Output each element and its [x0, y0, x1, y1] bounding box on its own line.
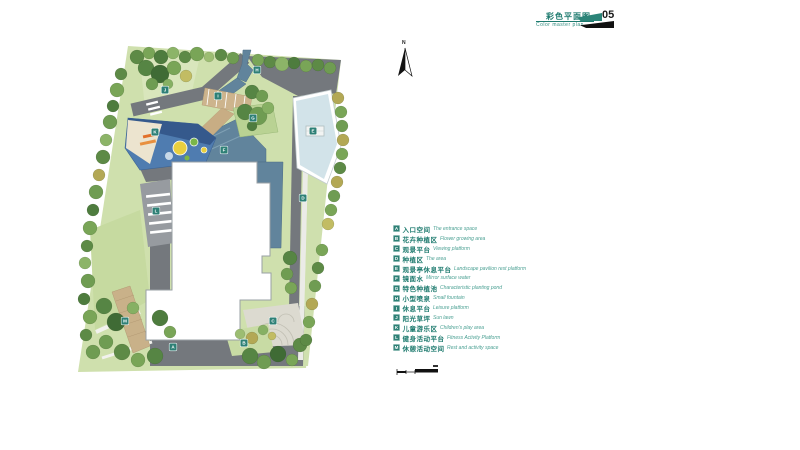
legend-item: L 健身活动平台 Fitness Activity Platform [393, 333, 563, 343]
plan-marker-d: D [300, 195, 307, 202]
title-black-shape [580, 21, 614, 28]
plan-marker-k: K [152, 129, 159, 136]
legend-label-en: Mirror surface water [426, 275, 470, 281]
legend-key-badge: L [393, 334, 400, 341]
legend-label-cn: 儿童游乐区 [403, 323, 438, 333]
legend-item: C 观景平台 Viewing platform [393, 244, 563, 254]
legend-label-cn: 健身活动平台 [403, 333, 445, 343]
legend-key-badge: I [393, 305, 400, 312]
page-number: 05 [602, 9, 614, 21]
legend-key-badge: G [393, 285, 400, 292]
plan-marker-h: H [254, 67, 261, 74]
north-arrow-icon [394, 40, 416, 80]
scale-bar [393, 363, 443, 377]
plan-marker-g: G [250, 115, 257, 122]
legend-key-badge: A [393, 225, 400, 232]
plan-marker-f: F [221, 147, 228, 154]
legend: A 入口空间 The entrance space B 花卉种植区 Flower… [393, 224, 563, 353]
legend-label-cn: 阳光草坪 [403, 313, 431, 323]
legend-label-en: Rest and activity space [447, 345, 498, 351]
legend-key-badge: M [393, 344, 400, 351]
legend-item: E 观景亭休息平台 Landscape pavilion rest platfo… [393, 264, 563, 274]
legend-label-cn: 观景亭休息平台 [403, 264, 452, 274]
legend-key-badge: D [393, 255, 400, 262]
north-label: N [402, 40, 406, 46]
legend-item: H 小型喷泉 Small fountain [393, 293, 563, 303]
legend-label-en: The area [426, 256, 446, 262]
legend-label-en: Small fountain [433, 295, 465, 301]
legend-key-badge: K [393, 324, 400, 331]
plan-marker-j: J [162, 87, 169, 94]
legend-label-en: Viewing platform [433, 246, 470, 252]
legend-item: A 入口空间 The entrance space [393, 224, 563, 234]
legend-label-en: The entrance space [433, 226, 477, 232]
legend-label-en: Sun lawn [433, 315, 454, 321]
legend-key-badge: H [393, 295, 400, 302]
plan-marker-c: C [270, 318, 277, 325]
plan-marker-e: E [310, 128, 317, 135]
legend-label-en: Fitness Activity Platform [447, 335, 500, 341]
legend-label-cn: 入口空间 [403, 224, 431, 234]
legend-label-cn: 休息平台 [403, 303, 431, 313]
north-arrow: N [394, 40, 416, 80]
title-block: 彩色平面图 Color master plan 05 [530, 9, 625, 31]
legend-item: D 种植区 The area [393, 254, 563, 264]
legend-item: K 儿童游乐区 Children's play area [393, 323, 563, 333]
legend-label-en: Landscape pavilion rest platform [454, 266, 526, 272]
legend-item: M 休憩活动空间 Rest and activity space [393, 343, 563, 353]
page: { "header": { "title_cn": "彩色平面图", "titl… [0, 0, 800, 450]
legend-key-badge: C [393, 245, 400, 252]
plan-marker-a: A [170, 344, 177, 351]
legend-item: G 特色种植池 Characteristic planting pond [393, 283, 563, 293]
legend-key-badge: J [393, 314, 400, 321]
legend-label-cn: 特色种植池 [403, 283, 438, 293]
page-subtitle: Color master plan [536, 22, 584, 28]
legend-item: J 阳光草坪 Sun lawn [393, 313, 563, 323]
plan-marker-l: L [153, 208, 160, 215]
legend-label-cn: 花卉种植区 [403, 234, 438, 244]
scale-bar-graphic [393, 363, 443, 377]
legend-label-en: Characteristic planting pond [440, 285, 502, 291]
legend-item: I 休息平台 Leisure platform [393, 303, 563, 313]
legend-label-en: Flower growing area [440, 236, 485, 242]
legend-key-badge: B [393, 235, 400, 242]
legend-key-badge: E [393, 265, 400, 272]
plan-marker-m: M [122, 318, 129, 325]
legend-key-badge: F [393, 275, 400, 282]
legend-label-en: Leisure platform [433, 305, 469, 311]
legend-label-cn: 小型喷泉 [403, 293, 431, 303]
legend-label-cn: 种植区 [403, 254, 424, 264]
legend-label-cn: 观景平台 [403, 244, 431, 254]
legend-label-en: Children's play area [440, 325, 484, 331]
legend-label-cn: 镜面水 [403, 273, 424, 283]
plan-marker-b: B [241, 340, 248, 347]
legend-label-cn: 休憩活动空间 [403, 343, 445, 353]
legend-item: F 镜面水 Mirror surface water [393, 273, 563, 283]
legend-item: B 花卉种植区 Flower growing area [393, 234, 563, 244]
plan-marker-i: I [215, 93, 222, 100]
